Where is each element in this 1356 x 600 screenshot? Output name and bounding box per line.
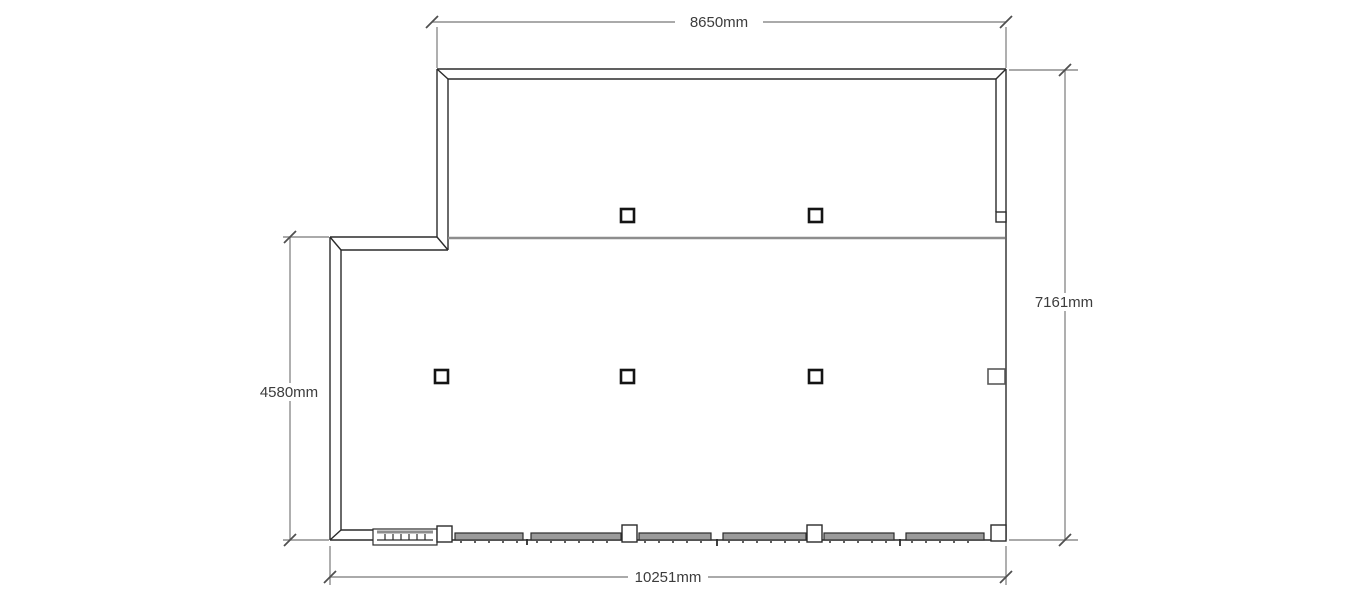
dimension-left: 4580mm [257, 231, 329, 546]
wall-mitre [330, 530, 341, 540]
wall-end-box [996, 212, 1006, 222]
glazing-band [824, 533, 894, 540]
columns [435, 209, 822, 383]
curtain-wall [373, 525, 1006, 546]
column [435, 370, 448, 383]
glazing-band [455, 533, 523, 540]
mullion-pier [437, 526, 452, 542]
dimension-top-label: 8650mm [690, 14, 748, 31]
wall-mitre [437, 237, 448, 250]
wall-mitre [437, 69, 448, 79]
mullion-pier [991, 525, 1006, 541]
mullion-pier [622, 525, 637, 542]
glazing-band [723, 533, 806, 540]
dimension-right: 7161mm [1009, 64, 1096, 546]
upper-room-walls [437, 69, 1006, 540]
dimension-bottom: 10251mm [324, 546, 1012, 586]
column [809, 209, 822, 222]
wall-mitre [996, 69, 1006, 79]
glazing-band [639, 533, 711, 540]
floor-plan-canvas: 8650mm 7161mm 4580mm 10251mm [0, 0, 1356, 600]
glazing-band [906, 533, 984, 540]
column [621, 370, 634, 383]
glazing-band [531, 533, 621, 540]
dimension-top: 8650mm [426, 13, 1012, 68]
dimension-left-label: 4580mm [260, 384, 318, 401]
wall-pilaster [988, 369, 1005, 384]
mullion-pier [807, 525, 822, 542]
dimension-right-label: 7161mm [1035, 294, 1093, 311]
wall-mitre [330, 237, 341, 250]
column [809, 370, 822, 383]
window-grille [373, 529, 437, 545]
floor-plan-drawing: 8650mm 7161mm 4580mm 10251mm [0, 0, 1356, 600]
lower-room-walls [330, 237, 1006, 540]
column [621, 209, 634, 222]
dimension-bottom-label: 10251mm [635, 569, 702, 586]
